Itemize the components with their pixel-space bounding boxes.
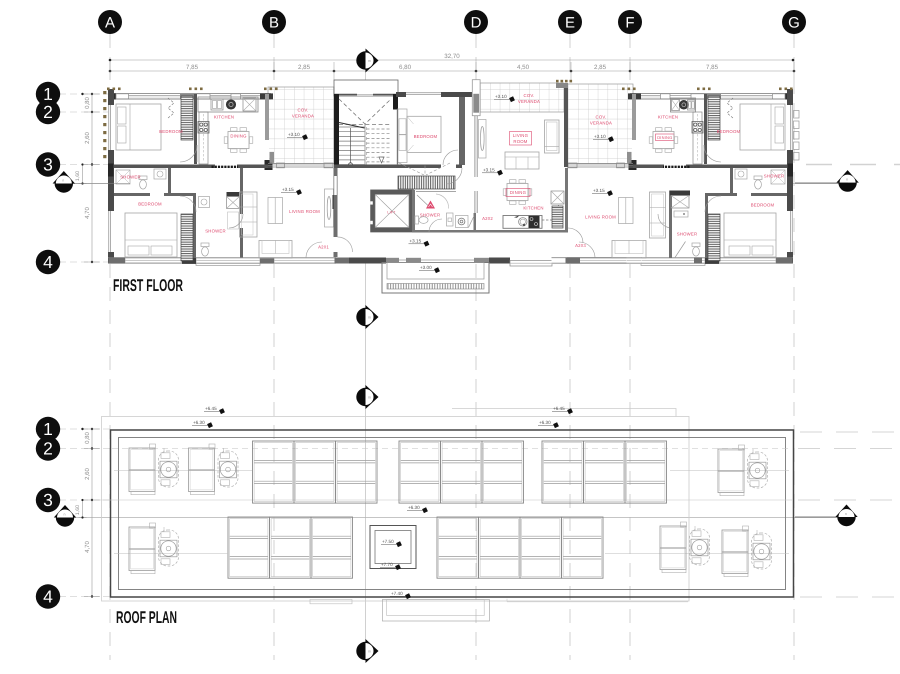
svg-text:D: D: [471, 14, 482, 31]
svg-text:LIVING: LIVING: [513, 133, 529, 138]
svg-text:+3.10: +3.10: [594, 134, 606, 139]
svg-text:1,60: 1,60: [75, 171, 81, 181]
svg-text:SHOWER: SHOWER: [420, 213, 441, 218]
svg-text:1: 1: [43, 419, 53, 439]
svg-text:BEDROOM: BEDROOM: [751, 203, 775, 208]
svg-text:3: 3: [43, 490, 53, 510]
svg-text:DINING: DINING: [510, 190, 527, 195]
svg-text:4: 4: [43, 587, 53, 607]
svg-text:4: 4: [43, 252, 53, 272]
svg-text:+6.30: +6.30: [408, 505, 420, 510]
svg-text:+3.10: +3.10: [495, 94, 507, 99]
svg-text:2: 2: [43, 439, 53, 459]
svg-text:LIVING ROOM: LIVING ROOM: [585, 215, 616, 220]
svg-text:A: A: [105, 14, 115, 31]
svg-text:ROOM: ROOM: [513, 139, 527, 144]
svg-text:3: 3: [43, 155, 53, 175]
svg-text:4,70: 4,70: [84, 207, 91, 219]
svg-text:SHOWER: SHOWER: [120, 175, 141, 180]
svg-text:DINING: DINING: [230, 134, 247, 139]
svg-text:+3.15: +3.15: [282, 187, 294, 192]
svg-text:SHOWER: SHOWER: [764, 174, 785, 179]
svg-text:7,85: 7,85: [706, 64, 719, 71]
svg-text:0,80: 0,80: [84, 97, 91, 109]
svg-text:SHOWER: SHOWER: [677, 232, 698, 237]
svg-text:E: E: [565, 14, 575, 31]
svg-text:COV.: COV.: [524, 93, 535, 98]
svg-text:+3.15: +3.15: [410, 239, 422, 244]
svg-text:+6.45: +6.45: [205, 406, 217, 411]
svg-text:+6.30: +6.30: [193, 420, 205, 425]
svg-text:BEDROOM: BEDROOM: [414, 134, 438, 139]
svg-text:n: n: [845, 512, 847, 516]
svg-text:0,80: 0,80: [84, 432, 91, 444]
svg-text:n: n: [64, 513, 66, 517]
svg-text:BEDROOM: BEDROOM: [717, 129, 741, 134]
svg-text:BEDROOM: BEDROOM: [138, 202, 162, 207]
svg-text:2,85: 2,85: [594, 64, 607, 71]
svg-text:+3.15: +3.15: [593, 188, 605, 193]
svg-text:LIVING ROOM: LIVING ROOM: [289, 209, 320, 214]
svg-text:COV.: COV.: [298, 108, 309, 113]
svg-text:DINING: DINING: [657, 135, 672, 140]
svg-text:n: n: [62, 179, 64, 183]
svg-text:A201: A201: [318, 245, 329, 250]
svg-text:2,85: 2,85: [298, 64, 311, 71]
svg-text:m: m: [368, 396, 371, 400]
svg-text:COV.: COV.: [596, 115, 607, 120]
svg-text:+3.00: +3.00: [420, 265, 432, 270]
svg-text:6,80: 6,80: [399, 64, 412, 71]
svg-text:1,60: 1,60: [75, 505, 81, 515]
svg-text:FIRST FLOOR: FIRST FLOOR: [113, 276, 183, 295]
svg-text:m: m: [368, 316, 371, 320]
svg-text:m: m: [368, 650, 371, 654]
svg-text:G: G: [788, 14, 800, 31]
svg-text:ROOF PLAN: ROOF PLAN: [116, 608, 177, 627]
svg-text:7,85: 7,85: [186, 64, 199, 71]
svg-text:B: B: [269, 14, 279, 31]
svg-text:+6.45: +6.45: [553, 406, 565, 411]
svg-text:VERANDA: VERANDA: [292, 114, 314, 119]
svg-text:F: F: [625, 14, 634, 31]
svg-text:4,50: 4,50: [517, 64, 530, 71]
svg-text:2: 2: [43, 102, 53, 122]
svg-text:m: m: [368, 59, 371, 63]
svg-text:VERANDA: VERANDA: [518, 99, 540, 104]
svg-text:2,60: 2,60: [84, 132, 91, 144]
svg-text:32,70: 32,70: [444, 53, 460, 60]
svg-text:n: n: [846, 178, 848, 182]
svg-text:+6.30: +6.30: [539, 420, 551, 425]
svg-text:+7.40: +7.40: [391, 591, 403, 596]
svg-text:4,70: 4,70: [84, 541, 91, 553]
svg-text:BEDROOM: BEDROOM: [159, 129, 183, 134]
svg-text:KITCHEN: KITCHEN: [214, 115, 234, 120]
svg-text:VERANDA: VERANDA: [590, 121, 612, 126]
svg-text:A202: A202: [482, 216, 493, 221]
svg-text:2,60: 2,60: [84, 468, 91, 480]
svg-text:+7.70: +7.70: [381, 562, 393, 567]
svg-text:SHOWER: SHOWER: [205, 229, 226, 234]
svg-text:+3.10: +3.10: [288, 132, 300, 137]
svg-text:LIFT: LIFT: [387, 211, 396, 215]
svg-text:+3.15: +3.15: [483, 168, 495, 173]
svg-text:+7.50: +7.50: [382, 539, 394, 544]
svg-text:KITCHEN: KITCHEN: [523, 206, 543, 211]
svg-text:A203: A203: [575, 243, 586, 248]
svg-text:KITCHEN: KITCHEN: [658, 115, 678, 120]
